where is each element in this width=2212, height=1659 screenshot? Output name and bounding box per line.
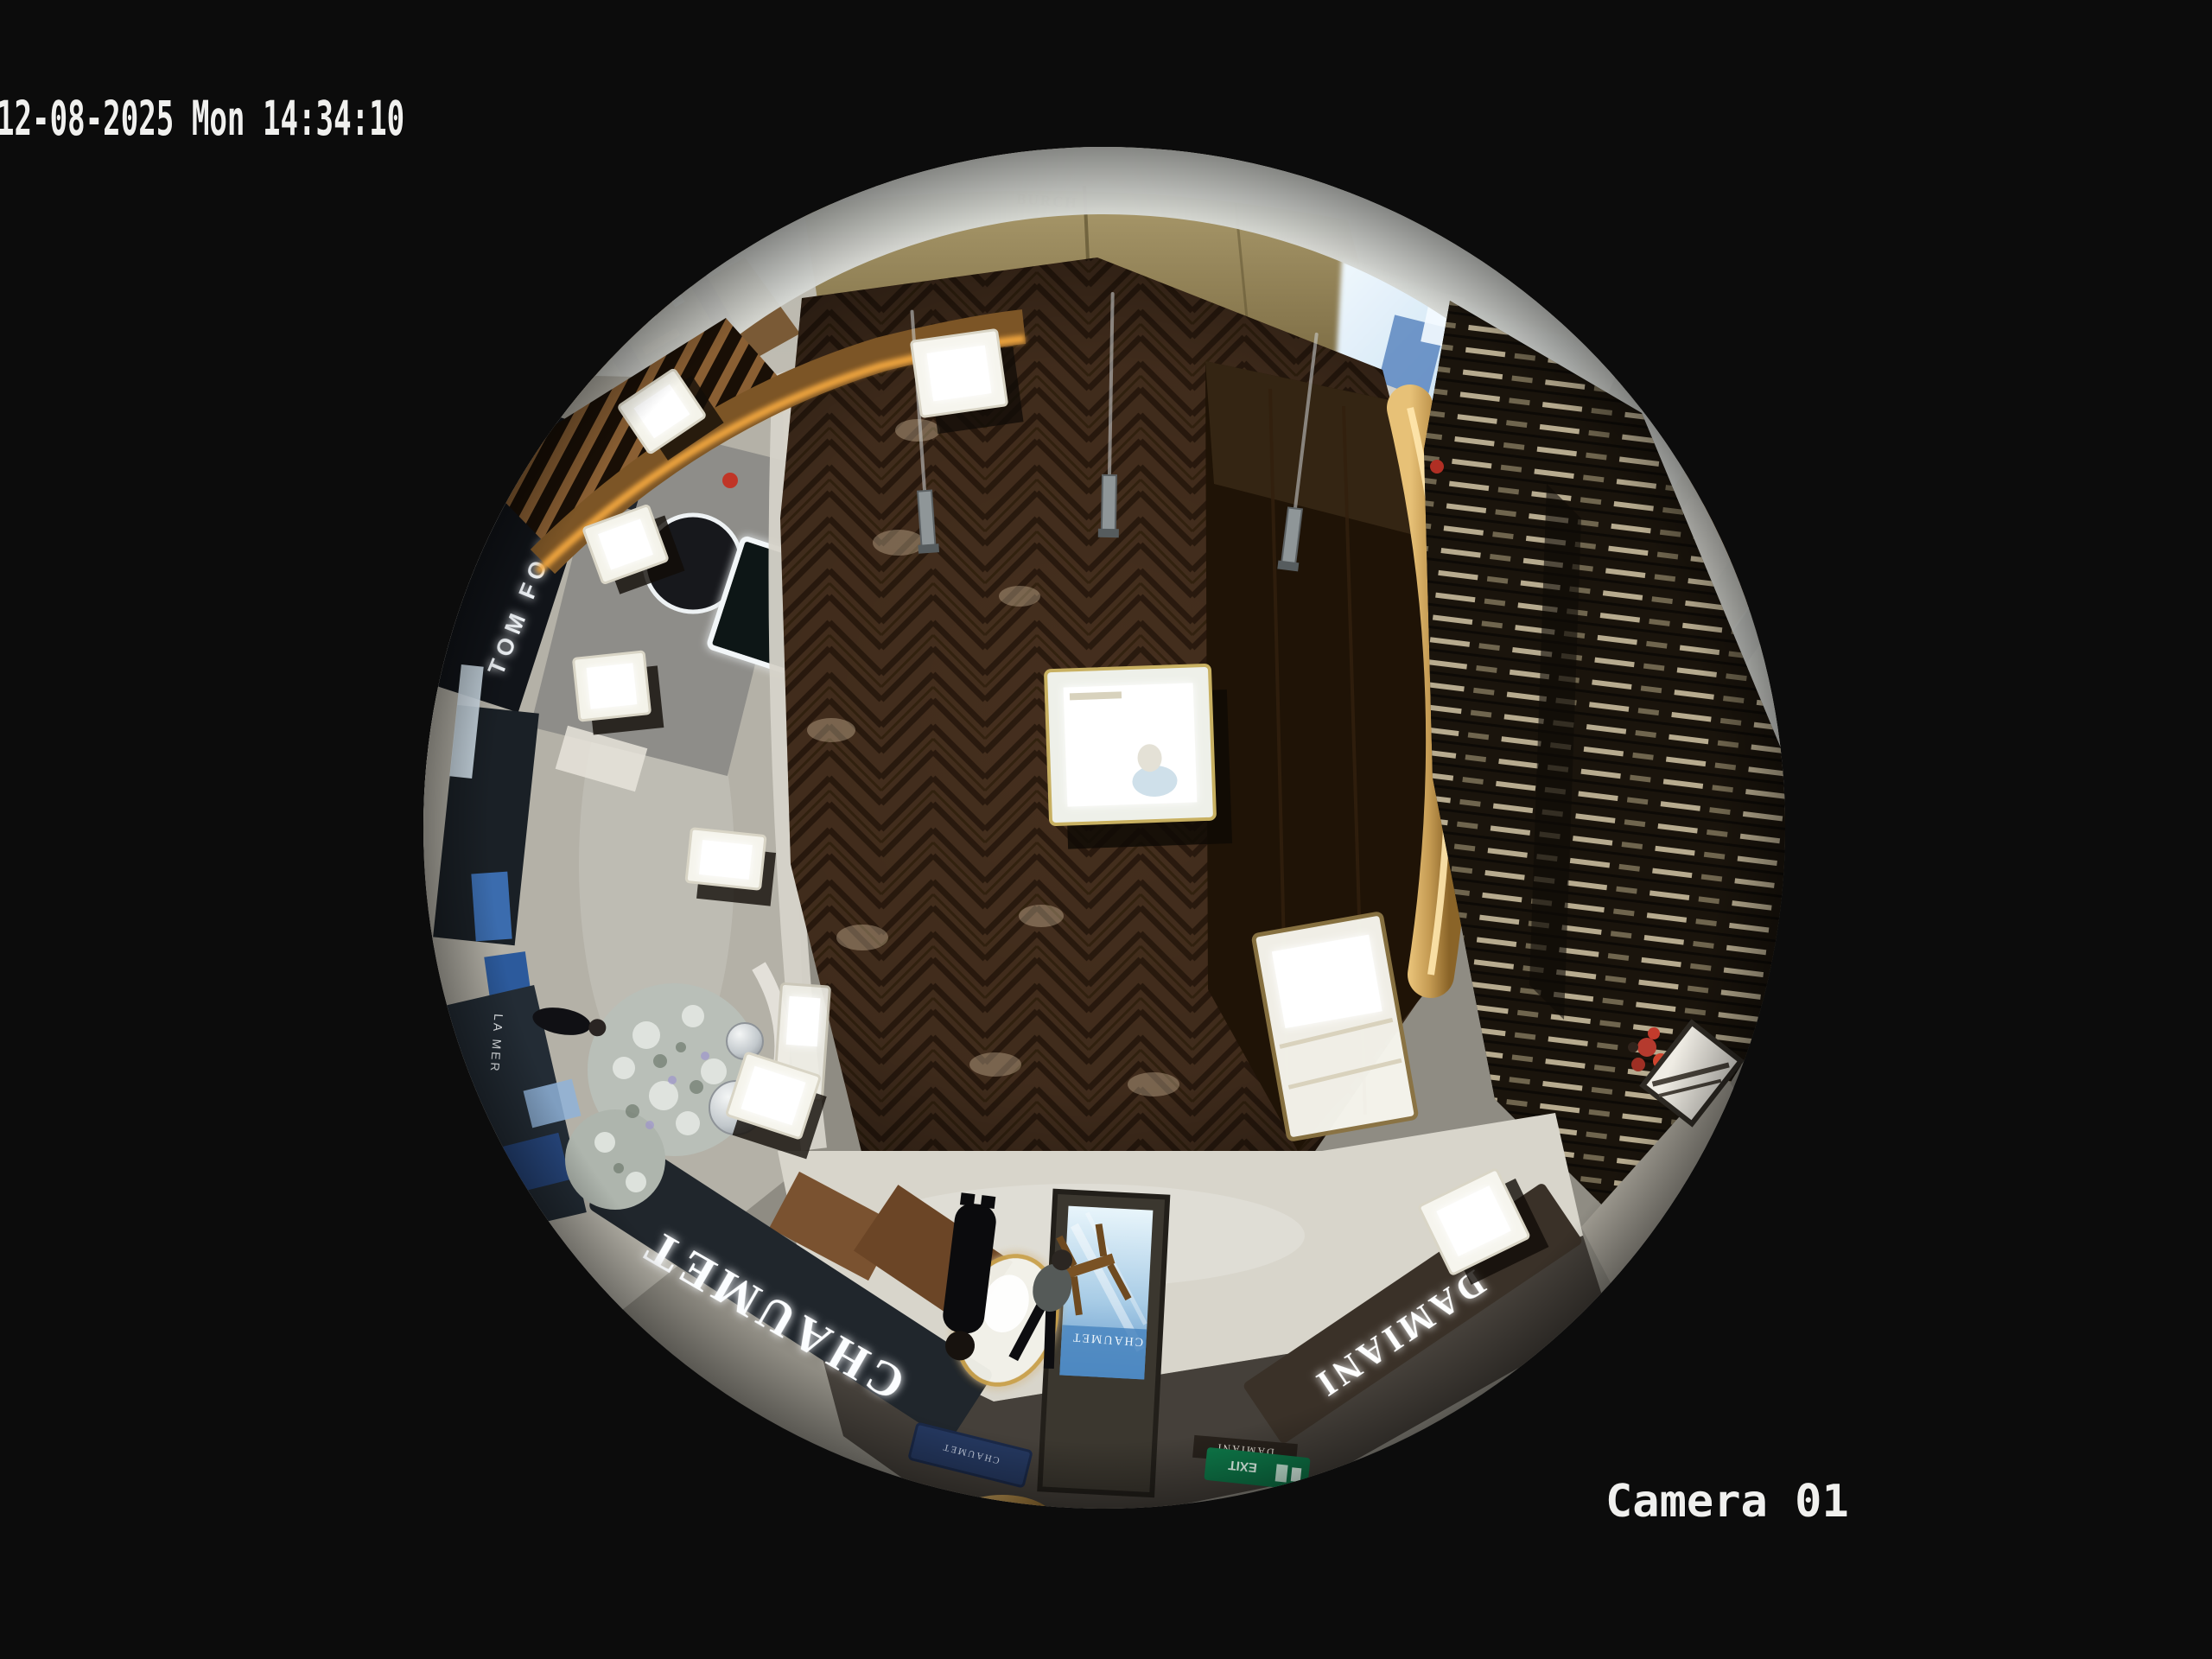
cctv-frame: BURCH bbox=[0, 0, 2212, 1659]
fisheye-vignette bbox=[422, 145, 1787, 1510]
osd-timestamp: 12-08-2025 Mon 14:34:10 bbox=[0, 95, 404, 143]
fisheye-camera-view: BURCH bbox=[0, 0, 2212, 1659]
osd-camera-label: Camera 01 bbox=[1605, 1479, 1849, 1524]
fisheye-circle: BURCH bbox=[406, 130, 1823, 1550]
